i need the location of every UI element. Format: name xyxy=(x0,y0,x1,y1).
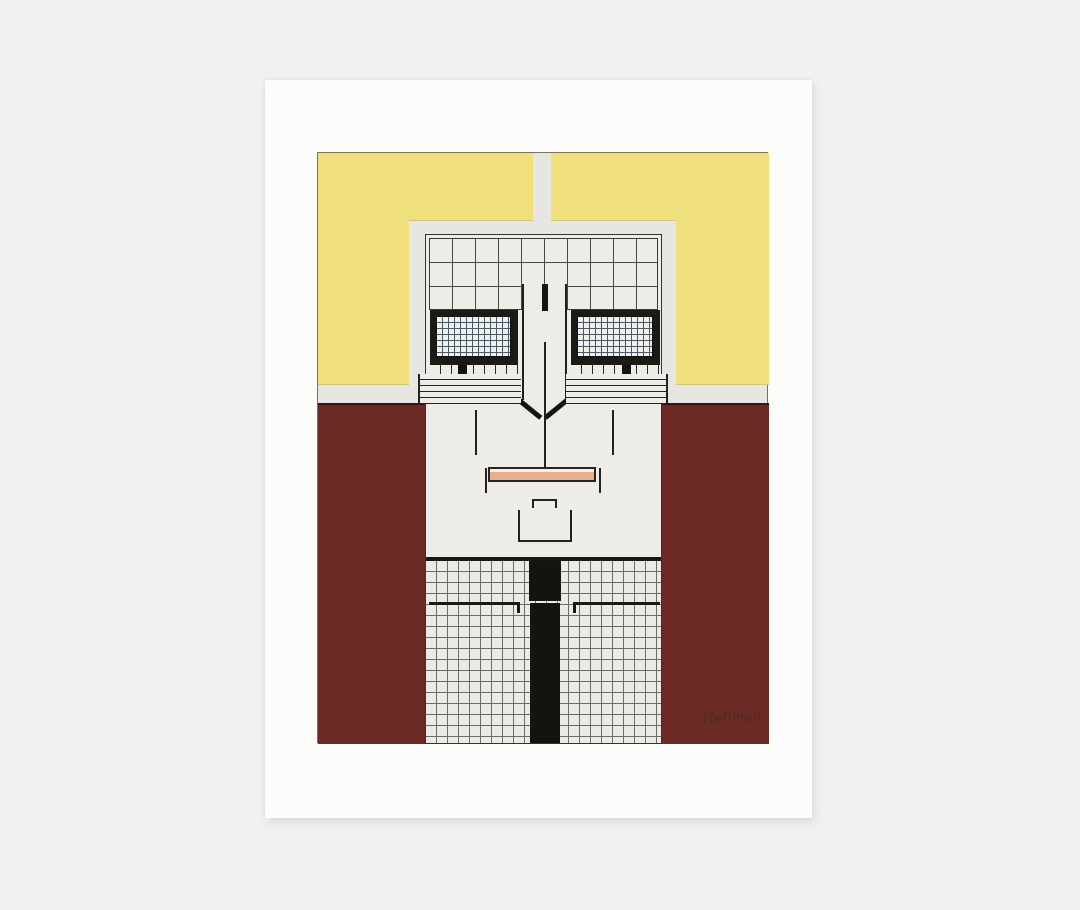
artwork-print: Hellman xyxy=(317,152,768,743)
tie-knot xyxy=(529,561,561,601)
artist-signature: Hellman xyxy=(682,710,763,735)
louver-band-right xyxy=(566,374,668,404)
left-cheek-line xyxy=(475,410,477,455)
yellow-field-left xyxy=(318,153,409,385)
photo-background: Hellman xyxy=(0,0,1080,910)
print-card: Hellman xyxy=(265,80,812,818)
louver-band-left xyxy=(418,374,521,404)
maroon-field-right xyxy=(659,403,769,744)
yellow-band-top-left xyxy=(409,153,533,221)
lips xyxy=(488,467,596,482)
right-cheek-line xyxy=(612,410,614,455)
right-collar-tick xyxy=(573,602,576,613)
tie xyxy=(530,603,560,743)
right-collar-line xyxy=(573,602,660,605)
lip-corner-left xyxy=(485,468,487,493)
right-eye-window-grid xyxy=(577,316,653,357)
left-eye xyxy=(430,310,518,365)
glabella-bar xyxy=(542,284,548,311)
chin-bracket xyxy=(518,510,572,542)
lip-corner-right xyxy=(599,468,601,493)
left-eye-window-grid xyxy=(436,316,511,357)
yellow-field-right xyxy=(676,153,769,385)
left-collar-tick xyxy=(517,602,520,613)
maroon-field-left xyxy=(318,403,428,744)
yellow-band-top-right xyxy=(551,153,676,221)
right-eye xyxy=(571,310,660,365)
left-collar-line xyxy=(429,602,520,605)
face xyxy=(425,234,662,744)
lower-lip-bracket xyxy=(532,499,557,508)
nose-philtrum-line xyxy=(544,342,546,468)
